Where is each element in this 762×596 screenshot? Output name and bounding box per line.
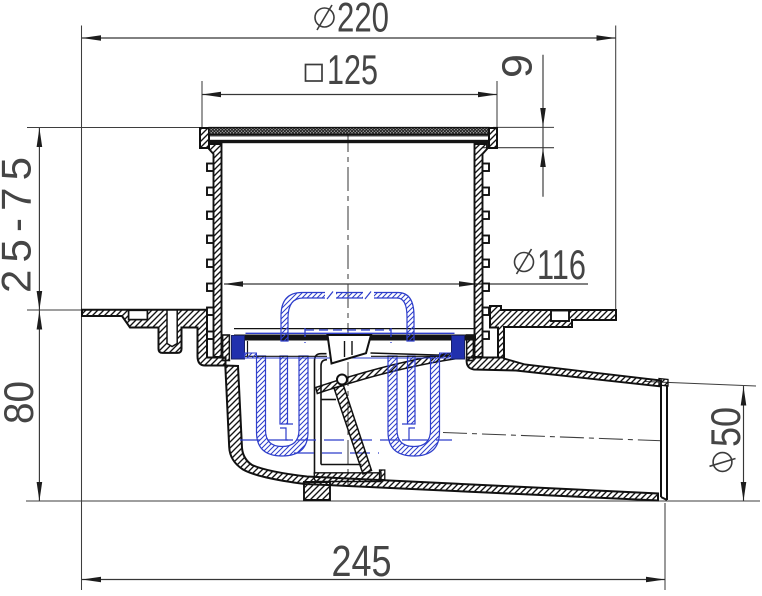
svg-text:116: 116 <box>537 241 586 288</box>
svg-text:245: 245 <box>332 537 392 586</box>
svg-text:220: 220 <box>337 0 389 41</box>
svg-text:25-75: 25-75 <box>0 157 40 293</box>
svg-text:9: 9 <box>494 54 542 78</box>
svg-text:125: 125 <box>327 46 378 93</box>
svg-text:50: 50 <box>702 407 749 447</box>
svg-text:80: 80 <box>0 381 42 424</box>
